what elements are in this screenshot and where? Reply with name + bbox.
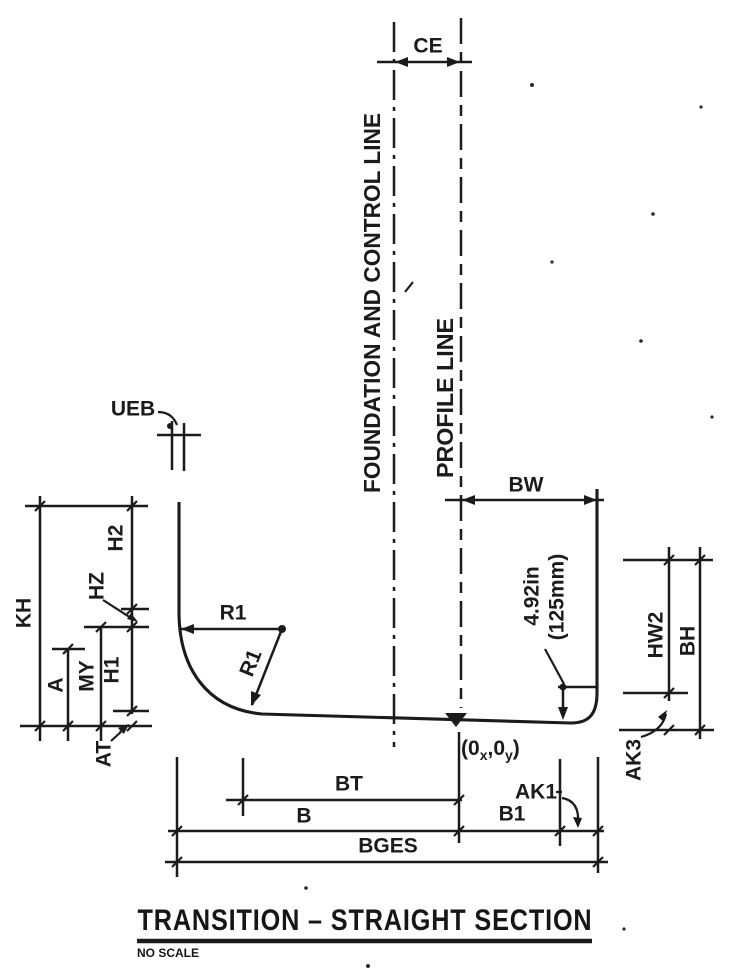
dim-label-ak1: AK1 xyxy=(515,781,557,804)
dim-label-bges: BGES xyxy=(358,835,418,858)
dim-label-ledge-mm: (125mm) xyxy=(546,554,569,640)
dim-label-b: B xyxy=(296,805,311,828)
dim-label-at: AT xyxy=(93,741,116,768)
origin-mid: ,0 xyxy=(487,737,505,760)
foundation-line-label: FOUNDATION AND CONTROL LINE xyxy=(359,113,385,493)
dim-label-bw: BW xyxy=(509,474,544,497)
dim-label-r1-horizontal: R1 xyxy=(220,602,247,625)
dim-label-ak3: AK3 xyxy=(623,739,646,781)
r1-arrow-icon xyxy=(181,624,194,634)
dim-label-bt: BT xyxy=(335,773,363,796)
origin-sub-y: y xyxy=(505,747,513,763)
dim-label-ce: CE xyxy=(413,35,442,58)
ledge-dot-icon xyxy=(560,684,567,691)
r1-radial-arrow-icon xyxy=(251,691,261,706)
origin-label: (0x,0y) xyxy=(461,737,520,763)
dim-label-a: A xyxy=(45,677,68,692)
engineering-drawing-page: CE FOUNDATION AND CONTROL LINE PROFILE L… xyxy=(0,0,746,974)
profile-line-label: PROFILE LINE xyxy=(432,318,458,478)
dim-label-r1-radial: R1 xyxy=(235,646,267,680)
ueb-dot-icon xyxy=(167,423,173,429)
dim-label-ledge-in: 4.92in xyxy=(521,566,544,626)
dim-label-h1: H1 xyxy=(101,656,124,683)
dim-label-b1: B1 xyxy=(499,803,526,826)
drawing-title: TRANSITION – STRAIGHT SECTION xyxy=(138,904,593,937)
dim-label-my: MY xyxy=(76,660,99,692)
ledge-leader-line xyxy=(545,649,564,684)
origin-post: ) xyxy=(513,737,520,760)
scan-artifact-slash xyxy=(405,282,413,292)
dim-label-kh: KH xyxy=(13,598,36,628)
origin-pre: (0 xyxy=(461,737,480,760)
dim-label-hz: HZ xyxy=(86,572,109,600)
dim-label-hw2: HW2 xyxy=(645,612,668,659)
scale-note: NO SCALE xyxy=(137,946,199,960)
dim-label-bh: BH xyxy=(677,626,700,656)
transition-section-diagram: CE FOUNDATION AND CONTROL LINE PROFILE L… xyxy=(0,0,746,974)
origin-sub-x: x xyxy=(480,747,488,763)
ledge-down-arrow-icon xyxy=(558,707,568,720)
ueb-leader-line xyxy=(158,412,177,425)
bw-right-arrow-icon xyxy=(584,495,597,505)
ueb-freeboard-symbol xyxy=(157,421,201,471)
ce-left-arrow-icon xyxy=(395,57,408,67)
dim-label-ueb: UEB xyxy=(111,398,155,421)
ak1-leader-arrow-icon xyxy=(573,817,582,828)
dimension-slash-ticks xyxy=(35,501,705,867)
ce-right-arrow-icon xyxy=(447,57,460,67)
bw-left-arrow-icon xyxy=(462,495,475,505)
dim-label-h2: H2 xyxy=(105,525,128,552)
